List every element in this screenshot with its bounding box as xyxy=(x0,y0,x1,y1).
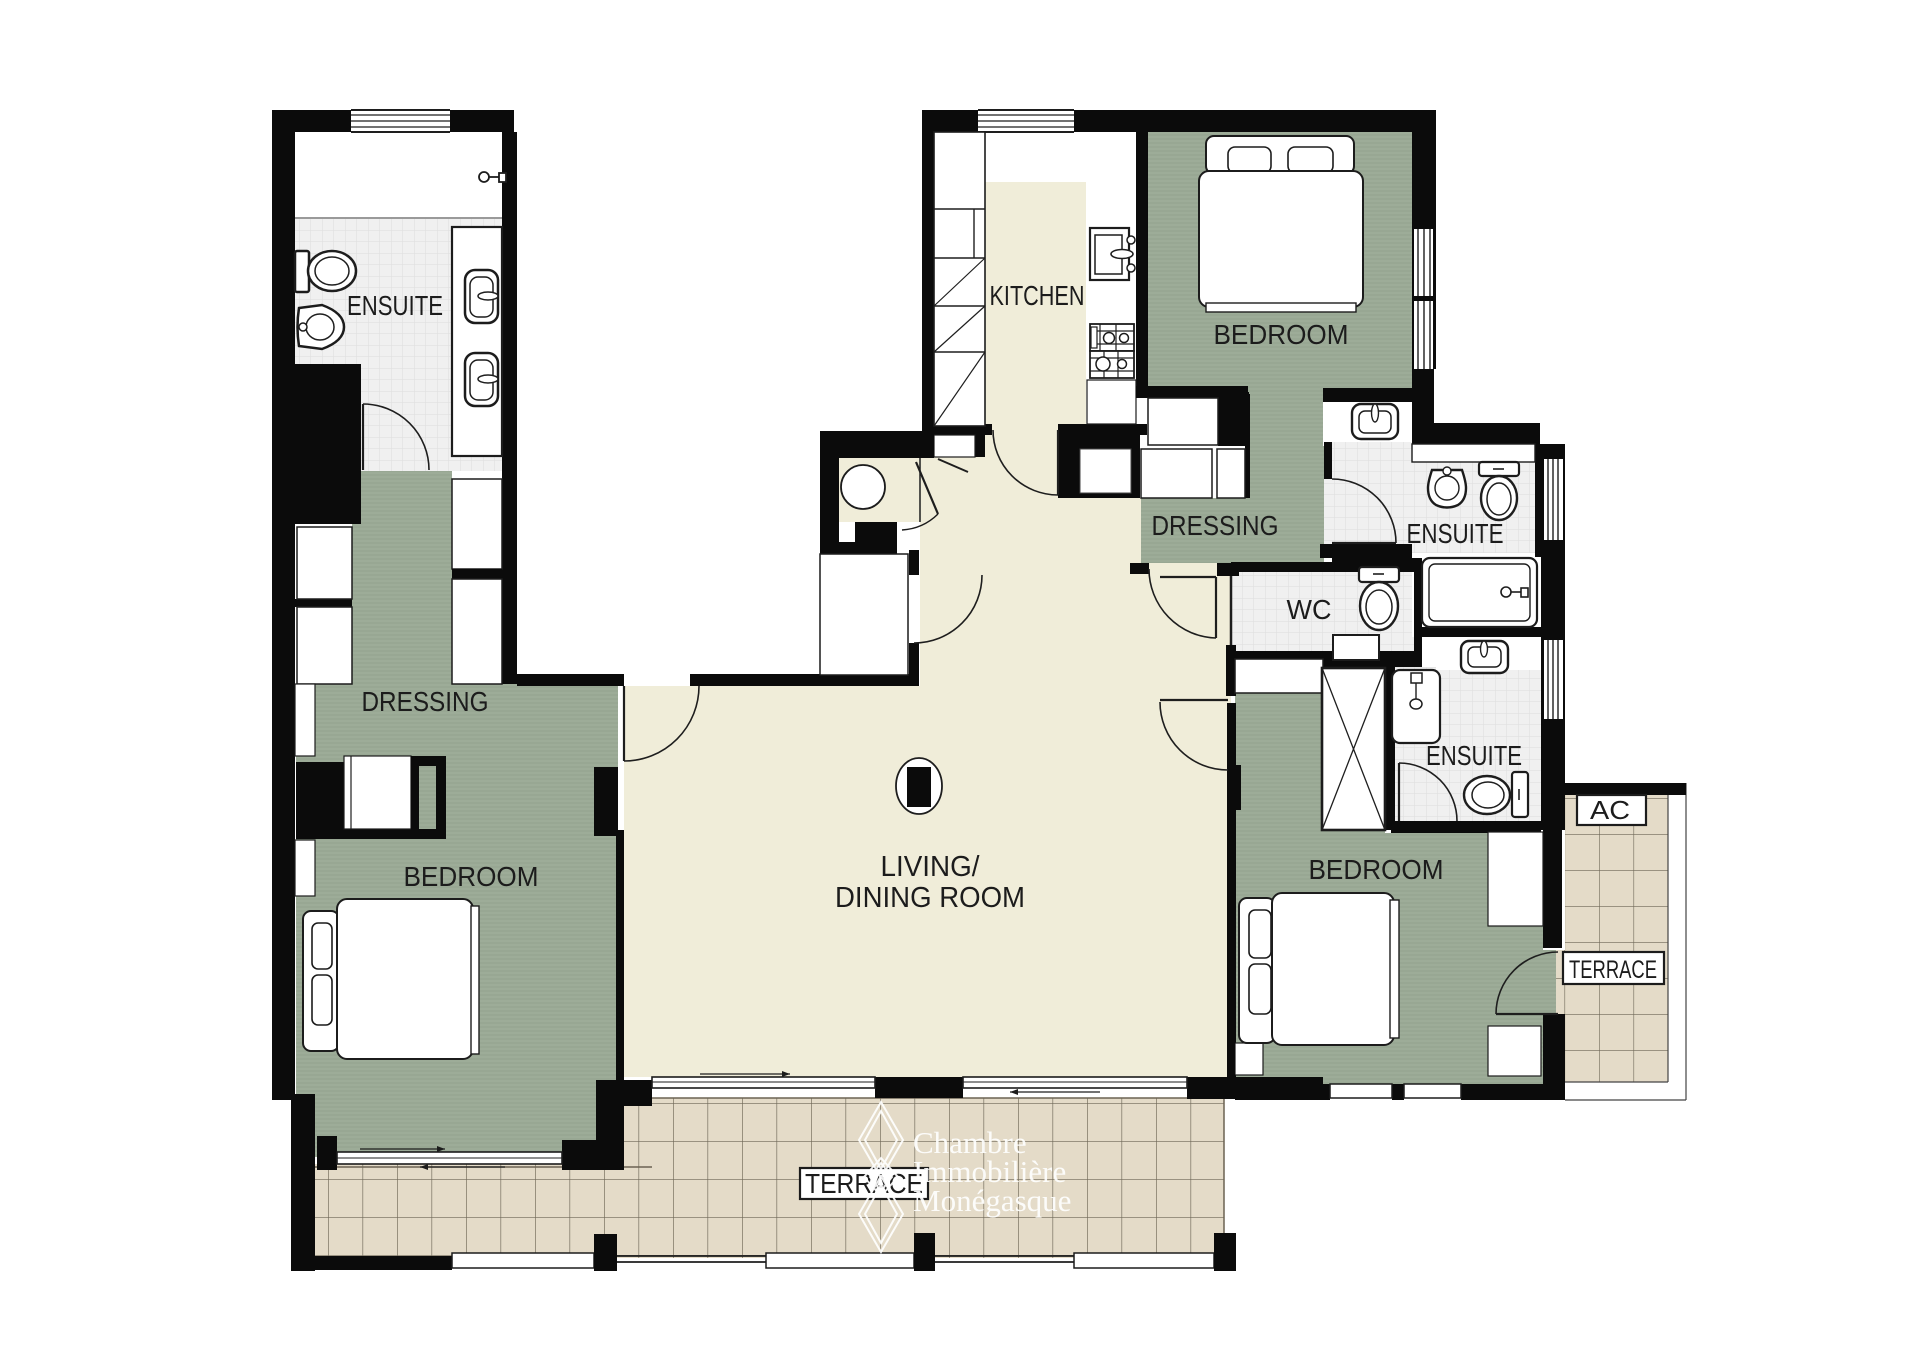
svg-text:DRESSING: DRESSING xyxy=(362,686,489,717)
svg-text:BEDROOM: BEDROOM xyxy=(1309,854,1444,885)
svg-text:BEDROOM: BEDROOM xyxy=(404,861,539,892)
svg-text:ENSUITE: ENSUITE xyxy=(1407,518,1504,549)
svg-text:TERRACE: TERRACE xyxy=(805,1168,923,1199)
svg-text:DINING ROOM: DINING ROOM xyxy=(835,882,1025,914)
svg-text:BEDROOM: BEDROOM xyxy=(1214,319,1349,350)
svg-text:ENSUITE: ENSUITE xyxy=(1426,740,1522,771)
svg-text:TERRACE: TERRACE xyxy=(1569,956,1657,984)
svg-text:KITCHEN: KITCHEN xyxy=(990,280,1085,311)
svg-text:AC: AC xyxy=(1590,795,1630,825)
svg-text:Monégasque: Monégasque xyxy=(913,1183,1071,1218)
svg-text:DRESSING: DRESSING xyxy=(1152,510,1279,541)
svg-text:ENSUITE: ENSUITE xyxy=(347,290,443,321)
svg-text:LIVING/: LIVING/ xyxy=(881,851,981,883)
svg-text:WC: WC xyxy=(1287,594,1332,625)
